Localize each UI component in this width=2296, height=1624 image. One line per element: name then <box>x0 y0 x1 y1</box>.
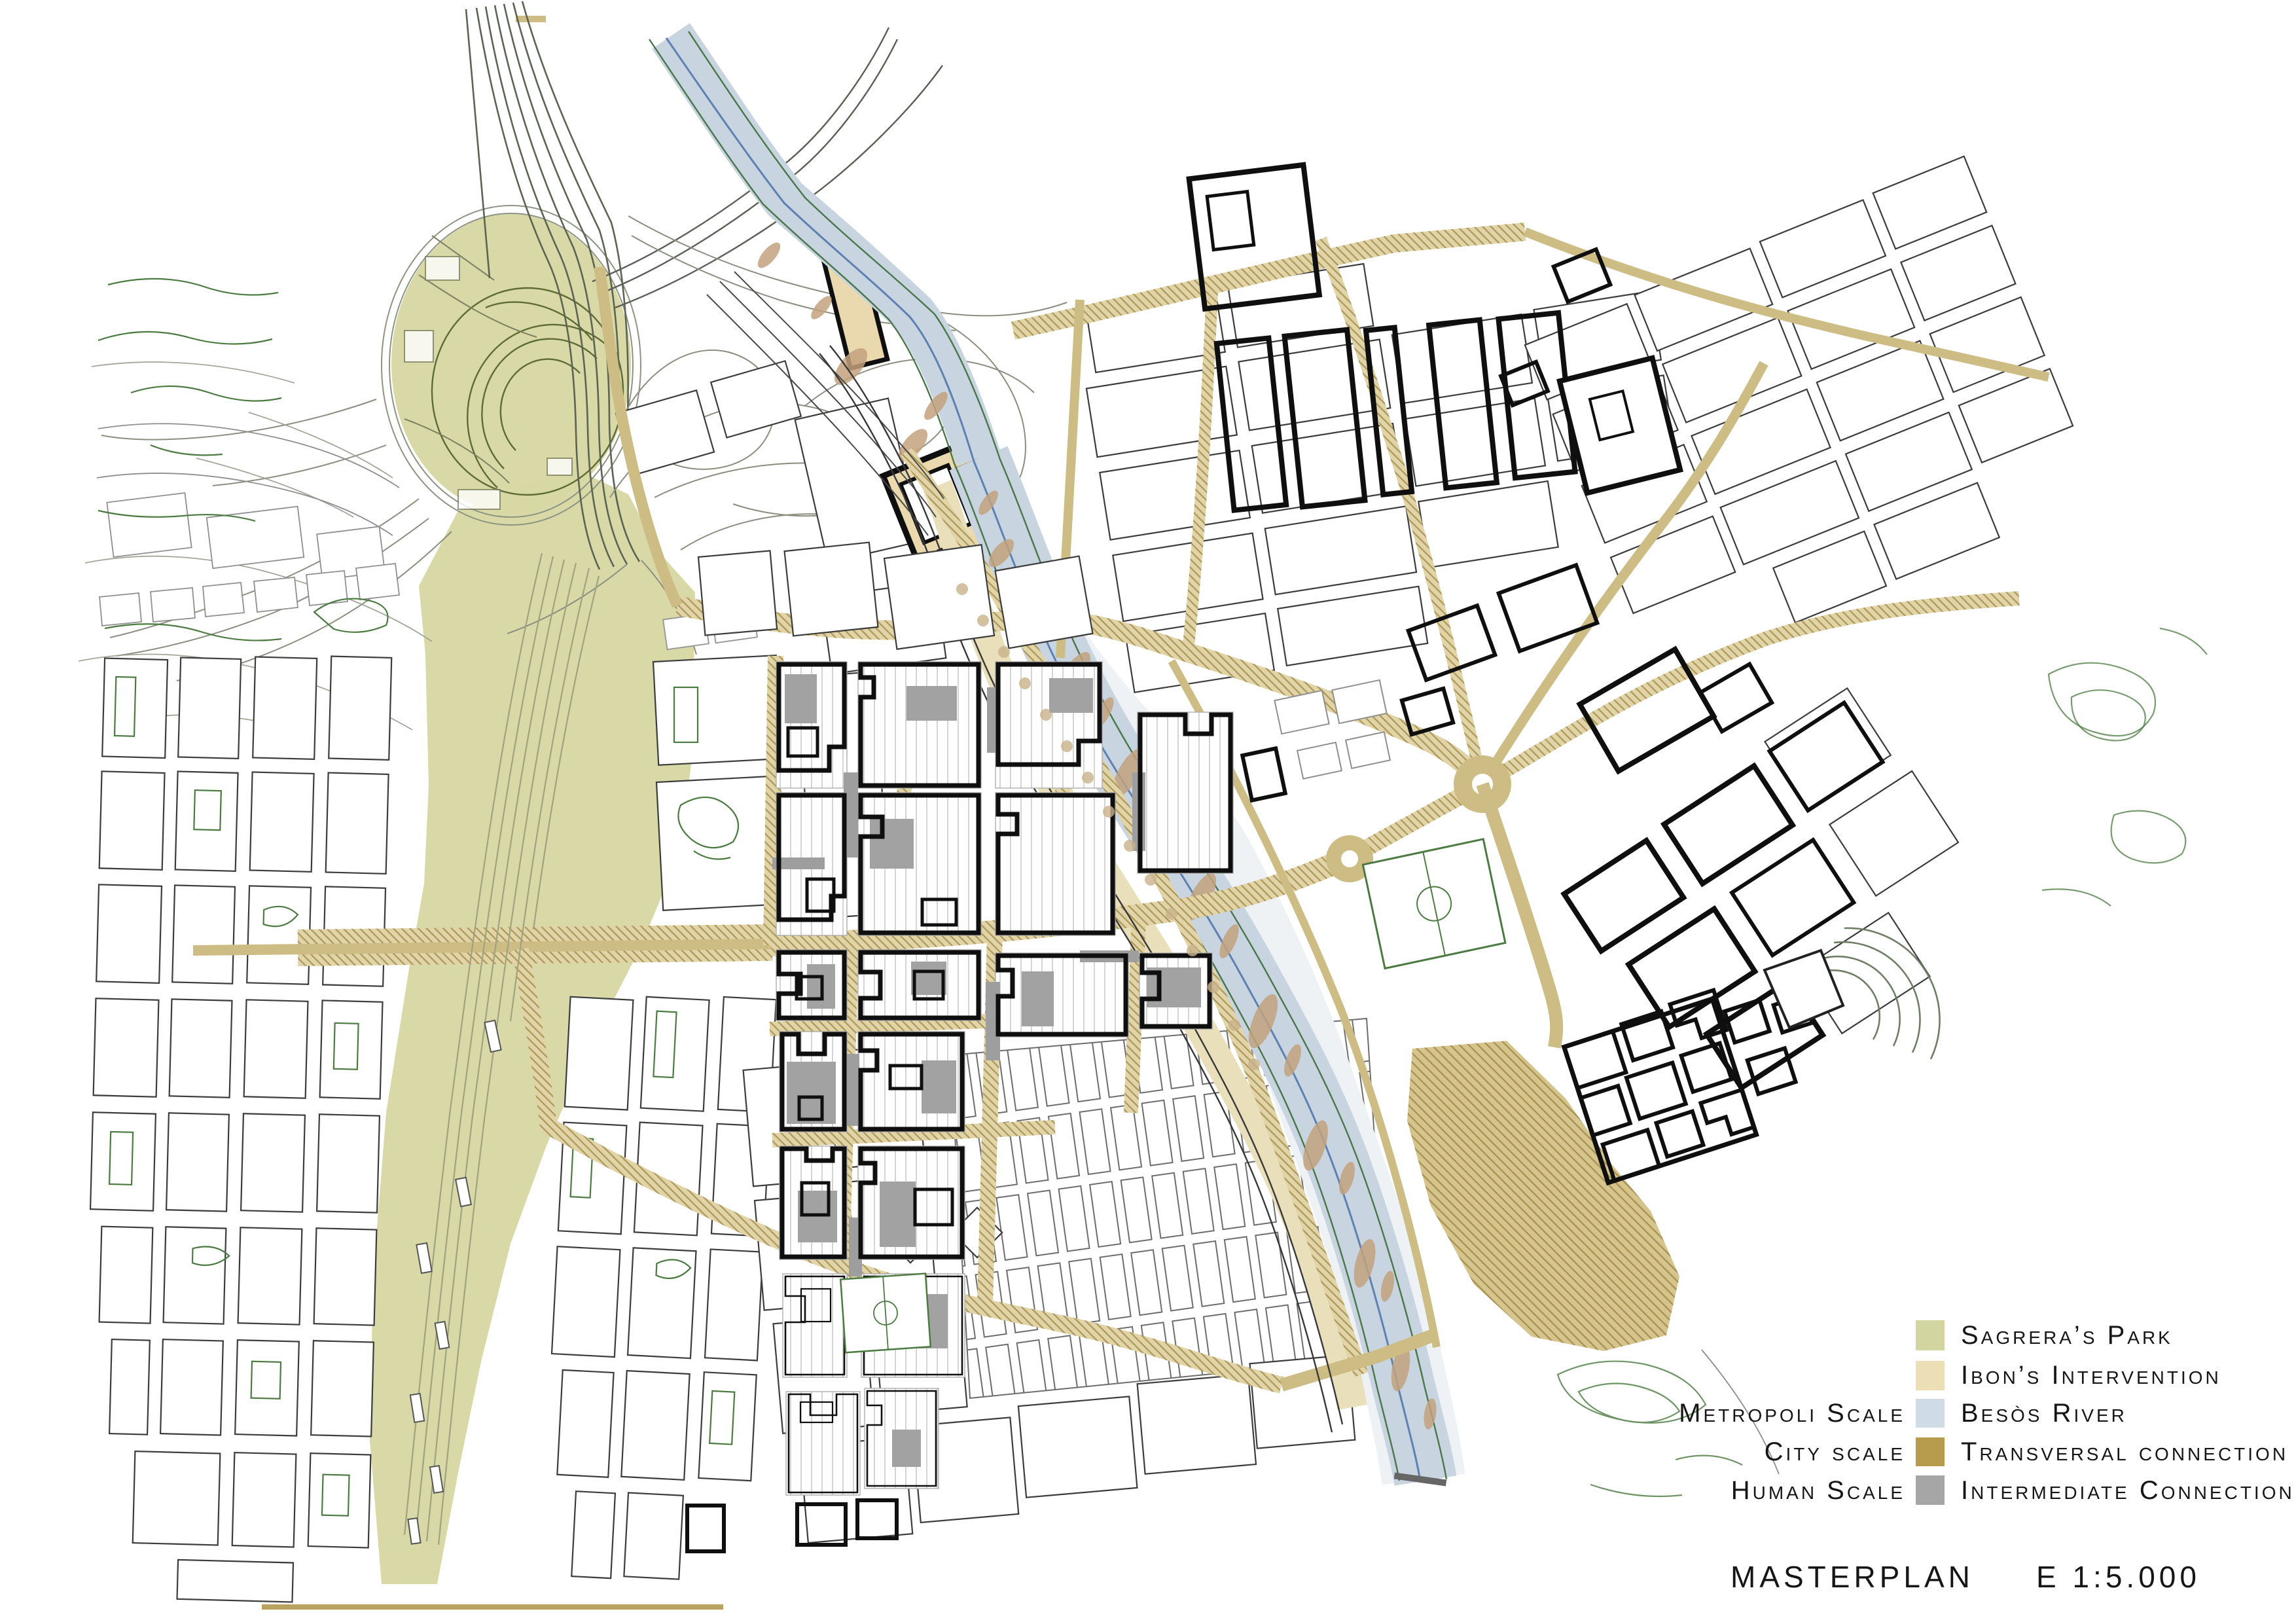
svg-text:Ibon’s Intervention: Ibon’s Intervention <box>1961 1361 2221 1390</box>
svg-text:MASTERPLAN: MASTERPLAN <box>1731 1560 1974 1594</box>
svg-text:City scale: City scale <box>1765 1437 1905 1466</box>
svg-text:Metropoli Scale: Metropoli Scale <box>1679 1399 1905 1428</box>
svg-text:Sagrera’s Park: Sagrera’s Park <box>1961 1321 2173 1350</box>
svg-text:Human Scale: Human Scale <box>1731 1476 1905 1505</box>
svg-text:E 1:5.000: E 1:5.000 <box>2036 1560 2200 1594</box>
svg-text:Intermediate Connection: Intermediate Connection <box>1961 1476 2295 1505</box>
svg-text:Besòs River: Besòs River <box>1961 1399 2127 1428</box>
svg-text:Transversal connection: Transversal connection <box>1961 1437 2288 1466</box>
